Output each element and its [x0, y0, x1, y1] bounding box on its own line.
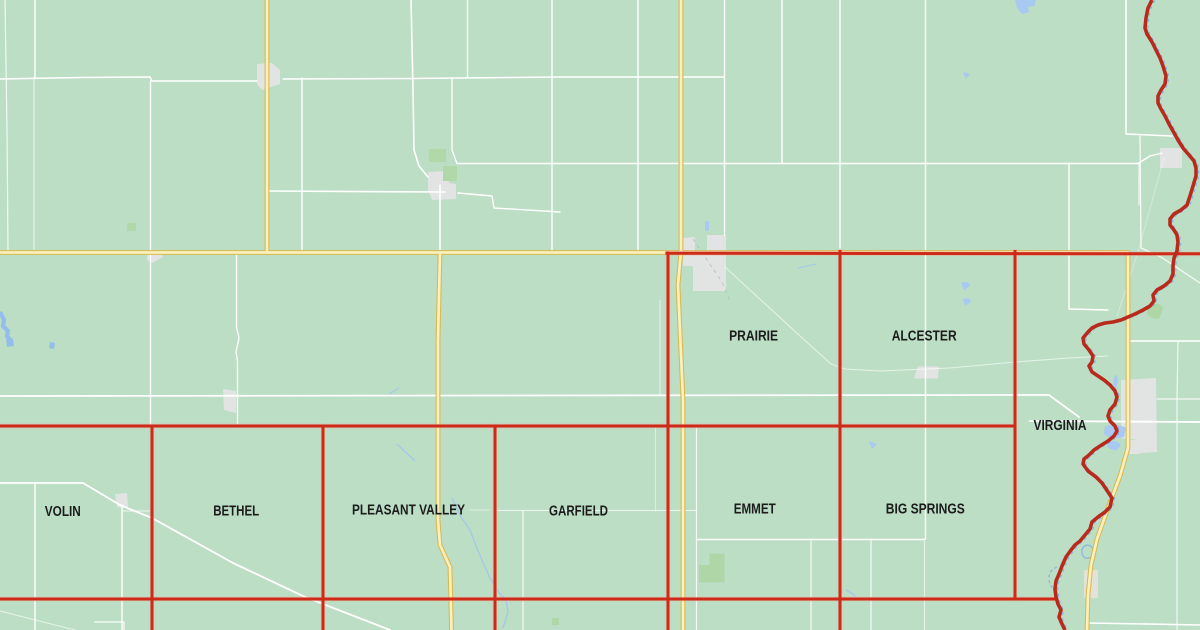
- svg-text:EMMET: EMMET: [734, 502, 776, 518]
- svg-text:VIRGINIA: VIRGINIA: [1034, 418, 1087, 434]
- svg-text:VOLIN: VOLIN: [45, 504, 81, 520]
- svg-text:ALCESTER: ALCESTER: [892, 329, 958, 345]
- svg-text:GARFIELD: GARFIELD: [549, 504, 608, 520]
- svg-text:PRAIRIE: PRAIRIE: [729, 329, 778, 345]
- svg-text:PLEASANT VALLEY: PLEASANT VALLEY: [352, 503, 465, 519]
- svg-text:BETHEL: BETHEL: [213, 504, 259, 520]
- svg-text:BIG SPRINGS: BIG SPRINGS: [886, 502, 965, 518]
